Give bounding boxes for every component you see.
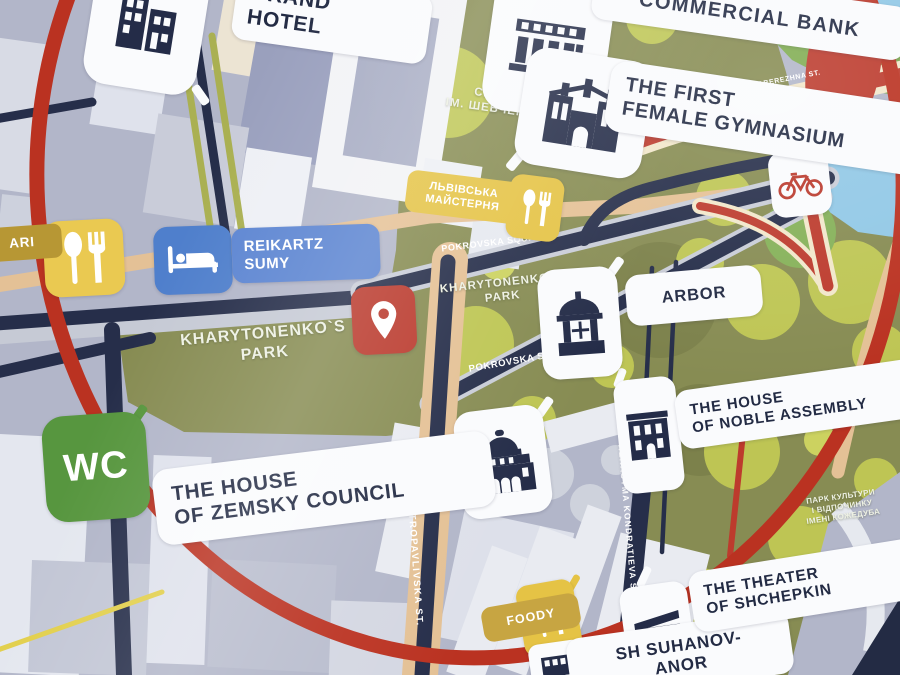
noble-assembly-icon [612,375,686,495]
bed-icon [153,225,233,296]
restaurant-ari-label: ARI [0,223,63,262]
arbor-icon [536,265,623,380]
wc-label: WC [40,411,151,524]
map-photo: GRAND HOTEL COMMERCIAL BANK THE FIRST FE… [0,0,900,675]
reikartz-sumy-label: REIKARTZ SUMY [231,223,381,284]
location-pin-icon [350,284,417,355]
